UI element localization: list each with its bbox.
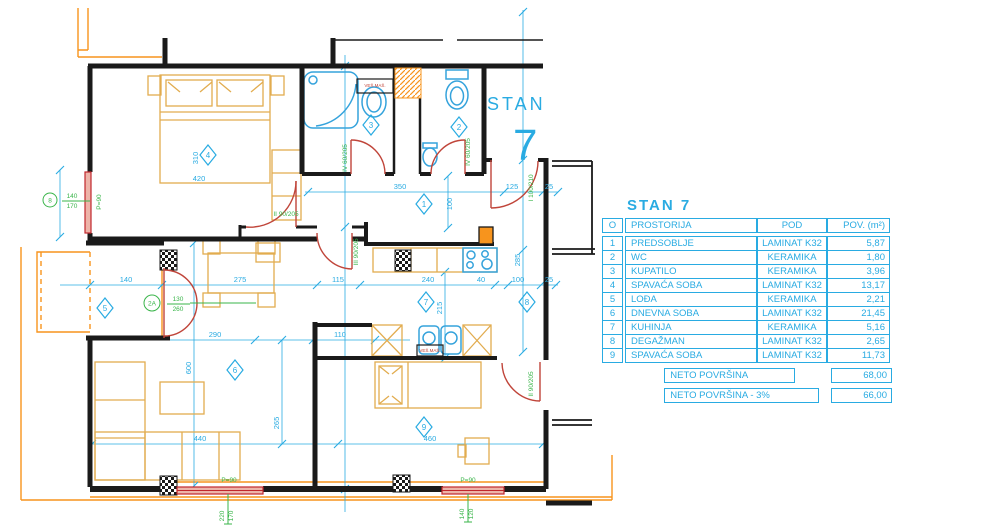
summary-row-neto: NETO POVRŠINA 68,00 xyxy=(602,368,892,383)
neto-label: NETO POVRŠINA xyxy=(664,368,794,383)
door-wc xyxy=(431,140,465,174)
left-window-label: 8 140 170 P=90 xyxy=(43,193,103,210)
single-bed xyxy=(375,362,481,408)
svg-text:P=90: P=90 xyxy=(221,477,237,484)
room-marker-1: 1 xyxy=(416,194,432,214)
svg-text:140: 140 xyxy=(120,275,133,284)
header-o: O xyxy=(602,218,623,233)
svg-text:100: 100 xyxy=(512,275,525,284)
nightstand-left xyxy=(148,76,161,95)
column-3 xyxy=(393,475,410,492)
furniture xyxy=(95,75,497,480)
table-row: 5LOĐAKERAMIKA2,21 xyxy=(602,292,892,307)
coffee-table xyxy=(160,382,204,414)
table-row: 4SPAVAĆA SOBALAMINAT K3213,17 xyxy=(602,278,892,293)
door-label-living: III 90/205 xyxy=(353,238,360,265)
svg-text:310: 310 xyxy=(191,152,200,165)
sofa xyxy=(95,362,240,480)
area-table: STAN 7 O PROSTORIJA POD POV. (m²) 1PREDS… xyxy=(602,197,892,403)
dining-table xyxy=(203,240,275,307)
svg-text:215: 215 xyxy=(435,302,444,315)
svg-text:220: 220 xyxy=(219,510,226,521)
dimension-texts: 350 125 25 100 115 240 40 100 25 140 275… xyxy=(120,152,553,443)
table-row: 7KUHINJAKERAMIKA5,16 xyxy=(602,320,892,335)
svg-text:130: 130 xyxy=(173,296,184,303)
door-label-bedroom2: II 90/205 xyxy=(528,371,535,397)
table-row: 3KUPATILOKERAMIKA3,96 xyxy=(602,264,892,279)
svg-text:460: 460 xyxy=(424,434,437,443)
svg-text:6: 6 xyxy=(233,366,238,375)
room-marker-8: 8 xyxy=(519,292,535,312)
column-4 xyxy=(479,227,493,244)
svg-text:2: 2 xyxy=(457,123,462,132)
door-bathroom xyxy=(351,140,385,174)
door-label-bathroom: IV 60/205 xyxy=(342,144,349,172)
fixtures xyxy=(304,70,497,356)
toilet xyxy=(446,70,468,109)
column-1 xyxy=(160,250,177,270)
table-header-row: O PROSTORIJA POD POV. (m²) xyxy=(602,218,892,233)
desk-bedroom2 xyxy=(465,438,489,464)
svg-text:275: 275 xyxy=(234,275,247,284)
washer-label: VEŠ.MAŠ. xyxy=(364,82,385,88)
room-marker-3: 3 xyxy=(363,115,379,135)
shower xyxy=(304,72,358,128)
svg-text:140: 140 xyxy=(67,193,78,200)
svg-text:100: 100 xyxy=(445,198,454,211)
plan-title-word: STAN xyxy=(487,94,546,114)
neto-value: 68,00 xyxy=(831,368,892,383)
door-living xyxy=(317,233,352,269)
neto3-label: NETO POVRŠINA - 3% xyxy=(664,388,819,403)
washer2-label: VEŠ.MAŠ. xyxy=(419,347,440,353)
svg-text:9: 9 xyxy=(422,423,427,432)
svg-text:420: 420 xyxy=(193,174,206,183)
table-title: STAN 7 xyxy=(627,197,892,214)
svg-text:125: 125 xyxy=(506,182,519,191)
svg-text:600: 600 xyxy=(184,362,193,375)
svg-text:170: 170 xyxy=(67,203,78,210)
svg-text:8: 8 xyxy=(48,198,52,205)
nightstand-right xyxy=(271,76,284,95)
room-marker-7: 7 xyxy=(418,292,434,312)
plan-title: STAN 7 xyxy=(487,94,546,170)
header-pod: POD xyxy=(757,218,827,233)
svg-text:1: 1 xyxy=(422,200,427,209)
room-marker-6: 6 xyxy=(227,360,243,380)
table-row: 8DEGAŽMANLAMINAT K322,65 xyxy=(602,334,892,349)
svg-text:2A: 2A xyxy=(148,301,157,308)
svg-text:285: 285 xyxy=(513,254,522,267)
plan-title-number: 7 xyxy=(513,121,537,170)
svg-text:120: 120 xyxy=(468,508,475,519)
column-2 xyxy=(160,476,177,495)
room-marker-2: 2 xyxy=(451,117,467,137)
table-row: 6DNEVNA SOBALAMINAT K3221,45 xyxy=(602,306,892,321)
svg-text:40: 40 xyxy=(477,275,485,284)
table-row: 1PREDSOBLJELAMINAT K325,87 xyxy=(602,236,892,251)
svg-text:350: 350 xyxy=(394,182,407,191)
room-marker-5: 5 xyxy=(97,298,113,318)
window-left xyxy=(85,172,91,233)
table-row: 2WCKERAMIKA1,80 xyxy=(602,250,892,265)
svg-text:3: 3 xyxy=(369,121,374,130)
balcony-door-label: 2A 130 260 xyxy=(144,295,256,313)
svg-text:440: 440 xyxy=(194,434,207,443)
table-body: 1PREDSOBLJELAMINAT K325,87 2WCKERAMIKA1,… xyxy=(602,236,892,363)
kitchen-counter xyxy=(373,248,497,272)
header-pov: POV. (m²) xyxy=(827,218,890,233)
doors xyxy=(164,140,540,401)
floor-plan-page: STAN 7 1 2 3 4 5 6 7 8 9 350 125 25 100 … xyxy=(0,0,1000,528)
stove xyxy=(463,248,497,272)
installation-shaft xyxy=(395,68,421,98)
svg-text:5: 5 xyxy=(103,304,108,313)
washbasin-wc xyxy=(423,143,437,166)
table-row: 9SPAVAĆA SOBALAMINAT K3211,73 xyxy=(602,348,892,363)
door-label-wc: IV 60/205 xyxy=(465,138,472,166)
svg-text:115: 115 xyxy=(332,275,344,284)
neto3-value: 66,00 xyxy=(831,388,892,403)
svg-text:170: 170 xyxy=(228,510,235,521)
svg-text:8: 8 xyxy=(525,298,530,307)
svg-text:7: 7 xyxy=(424,298,429,307)
svg-text:P=90: P=90 xyxy=(460,477,476,484)
svg-text:140: 140 xyxy=(459,508,466,519)
door-label-bedroom1: II 90/205 xyxy=(273,211,299,218)
svg-text:P=90: P=90 xyxy=(96,194,103,210)
door-label-entrance: I 100/210 xyxy=(528,174,535,201)
appliance-labels: VEŠ.MAŠ. VEŠ.MAŠ. xyxy=(364,82,440,353)
kitchen-sink xyxy=(395,250,411,271)
svg-text:25: 25 xyxy=(545,182,553,191)
room-marker-4: 4 xyxy=(200,145,216,165)
svg-text:260: 260 xyxy=(173,306,184,313)
svg-text:4: 4 xyxy=(206,151,211,160)
svg-text:240: 240 xyxy=(422,275,435,284)
header-prostorija: PROSTORIJA xyxy=(625,218,757,233)
svg-text:290: 290 xyxy=(209,330,222,339)
svg-text:25: 25 xyxy=(545,275,553,284)
double-bed xyxy=(160,75,270,183)
svg-text:265: 265 xyxy=(272,417,281,430)
svg-text:110: 110 xyxy=(334,330,346,339)
summary-row-neto-3: NETO POVRŠINA - 3% 66,00 xyxy=(602,388,892,403)
